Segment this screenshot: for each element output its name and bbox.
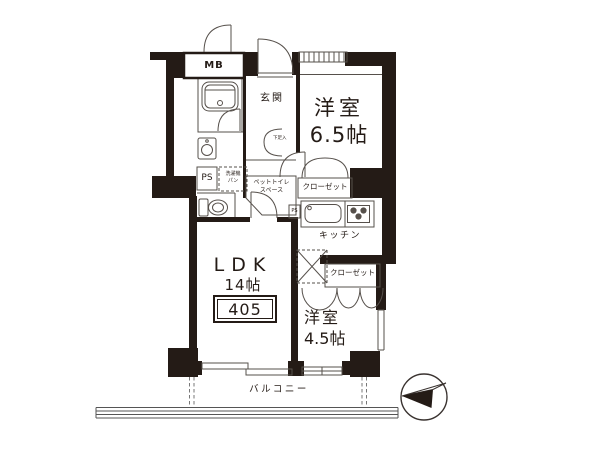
western-room-4-5-label: 洋室 4.5帖 xyxy=(304,307,376,349)
floor-plan-drawing xyxy=(0,0,600,450)
pipe-space-label: PS xyxy=(197,167,217,190)
entrance-label: 玄関 xyxy=(250,93,294,106)
unit-number-box: 405 xyxy=(213,295,277,323)
meter-box-label: MB xyxy=(184,53,244,78)
floor-plan: MB 玄関 洋室 6.5帖 クローゼット PS 洗濯機 パン ペットトイレ スペ… xyxy=(0,0,600,450)
western-room-6-5-label: 洋室 6.5帖 xyxy=(294,95,384,149)
kitchen-label: キッチン xyxy=(308,231,372,242)
toilet-icon xyxy=(199,199,228,216)
balcony-windows xyxy=(202,363,342,375)
bathtub-icon xyxy=(202,82,238,111)
ldk-label: LDK 14帖 xyxy=(198,254,288,294)
balcony-railing xyxy=(96,408,398,419)
shoe-cabinet-label: 下足入 xyxy=(273,136,287,142)
closet-upper-label: クローゼット xyxy=(298,182,352,191)
pipe-space-small-label: PS xyxy=(289,205,300,218)
side-window xyxy=(378,310,384,350)
stove-icon xyxy=(348,206,370,223)
pet-toilet-space-label: ペットトイレ スペース xyxy=(247,179,296,194)
washing-machine-pan-label: 洗濯機 パン xyxy=(218,171,248,184)
unit-number: 405 xyxy=(217,299,273,319)
closet-lower-label: クローゼット xyxy=(325,268,380,277)
washbasin-icon xyxy=(198,138,216,159)
refrigerator-space xyxy=(297,250,327,283)
kitchen-counter xyxy=(301,201,374,227)
balcony-label: バルコニー xyxy=(240,384,318,396)
compass-icon xyxy=(401,374,447,420)
lattice-window xyxy=(299,52,347,62)
sink-icon xyxy=(305,205,341,223)
